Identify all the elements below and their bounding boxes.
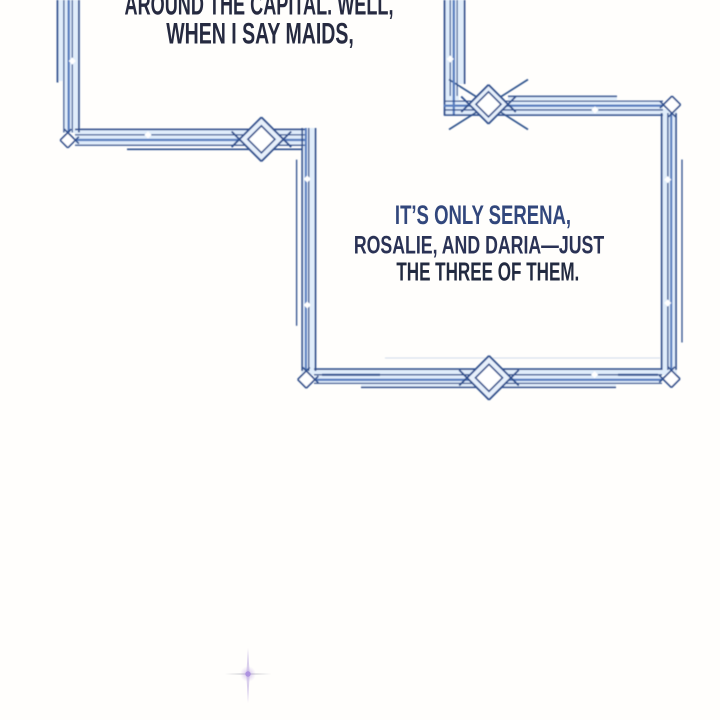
svg-text:ROSALIE, AND DARIA—JUST: ROSALIE, AND DARIA—JUST xyxy=(354,230,605,259)
svg-text:IT’S ONLY SERENA,: IT’S ONLY SERENA, xyxy=(395,200,571,230)
svg-text:THE THREE OF THEM.: THE THREE OF THEM. xyxy=(396,257,579,286)
svg-text:WHEN I SAY MAIDS,: WHEN I SAY MAIDS, xyxy=(166,18,354,51)
